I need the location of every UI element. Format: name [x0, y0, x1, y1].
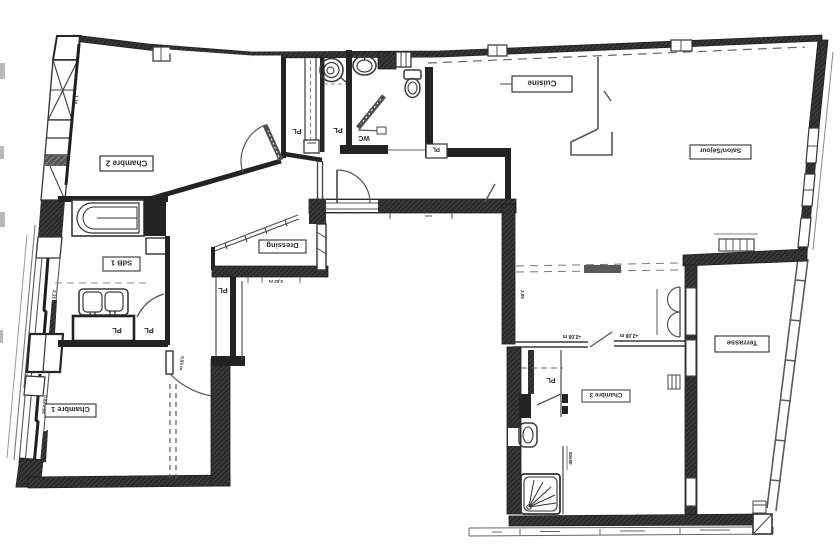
- svg-text:+2,08 m: +2,08 m: [562, 333, 581, 339]
- svg-text:Chambre 2: Chambre 2: [105, 159, 147, 168]
- svg-text:3,05: 3,05: [520, 290, 525, 299]
- svg-text:PL: PL: [144, 326, 154, 335]
- svg-text:PL: PL: [333, 126, 343, 135]
- svg-text:2,62 m: 2,62 m: [269, 279, 283, 284]
- svg-text:PL: PL: [112, 326, 122, 335]
- svg-text:Chambre 3: Chambre 3: [589, 391, 622, 398]
- svg-text:80x80: 80x80: [568, 452, 573, 465]
- svg-text:SdB 1: SdB 1: [111, 259, 132, 268]
- svg-text:Chambre 1: Chambre 1: [51, 405, 90, 414]
- svg-text:Salon/Séjour: Salon/Séjour: [699, 147, 741, 154]
- svg-text:WC: WC: [358, 134, 370, 141]
- svg-text:PL: PL: [218, 286, 228, 295]
- svg-text:Dressing: Dressing: [266, 241, 299, 250]
- svg-text:PL: PL: [292, 127, 302, 136]
- svg-text:Cuisine: Cuisine: [527, 79, 556, 88]
- svg-text:PL: PL: [432, 146, 440, 152]
- svg-text:Terrasse: Terrasse: [727, 339, 758, 348]
- svg-text:PL: PL: [546, 376, 556, 383]
- svg-text:+2,08 m: +2,08 m: [619, 332, 638, 338]
